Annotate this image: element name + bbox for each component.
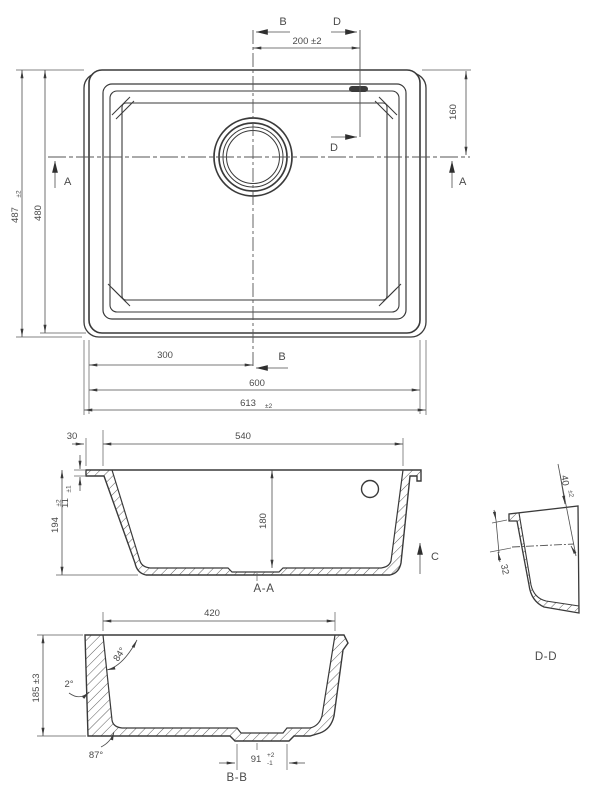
dim-11-tol: ±1 <box>66 485 73 493</box>
section-aa-label: A-A <box>254 583 275 595</box>
dim-487-tol: ±2 <box>16 190 23 198</box>
sink-technical-drawing-page: B D 200 ±2 160 A A 487 ±2 480 <box>0 0 613 800</box>
section-aa-hatch <box>86 470 421 575</box>
angle-2-label: 2° <box>64 679 73 690</box>
overflow-hole-section <box>362 481 379 498</box>
dim-32-label: 32 <box>498 563 511 576</box>
dim-613-label: 613 <box>240 398 256 409</box>
dim-185-label: 185 ±3 <box>31 674 42 703</box>
section-bb-bowl-surface <box>103 635 335 733</box>
dim-480-label: 480 <box>33 205 44 221</box>
angle-87-label: 87° <box>89 750 104 761</box>
angle-2-leader <box>69 692 89 697</box>
dim-30-label: 30 <box>67 431 78 442</box>
section-bb-label: B-B <box>227 772 248 784</box>
dim-32-arrow-bottom <box>498 552 500 562</box>
dim-200-label: 200 ±2 <box>293 36 322 47</box>
section-dd-dimensions: 40 ±2 32 D-D <box>490 464 576 663</box>
section-dd-hatch <box>509 513 579 612</box>
dim-613-tol: ±2 <box>265 403 273 410</box>
dim-160-label: 160 <box>448 104 459 120</box>
section-d-top-label: D <box>333 16 341 28</box>
view-c-label: C <box>431 551 439 563</box>
plan-view: B D 200 ±2 160 A A 487 ±2 480 <box>10 16 471 415</box>
dim-194-label: 194 <box>50 517 61 533</box>
section-b-bottom-label: B <box>278 351 285 363</box>
section-dd-view: 40 ±2 32 D-D <box>490 464 579 663</box>
dim-540-label: 540 <box>235 431 251 442</box>
dim-487-label: 487 <box>10 207 21 223</box>
section-a-left-label: A <box>64 176 72 188</box>
section-bb-view: 420 185 ±3 84° 2° 87° 91 +2 -1 B-B <box>31 608 348 784</box>
sink-flange-outline <box>89 70 420 333</box>
dim-600-label: 600 <box>249 378 265 389</box>
dim-32-ext-top <box>492 520 507 523</box>
dim-194-tol: ±2 <box>56 499 63 507</box>
dim-40-tol: ±2 <box>566 490 574 499</box>
dim-180-label: 180 <box>258 513 269 529</box>
section-dd-label: D-D <box>535 651 557 663</box>
dim-40-label: 40 <box>558 474 571 486</box>
overflow-slot <box>349 86 368 92</box>
dim-91-tol-minus: -1 <box>267 760 273 767</box>
section-b-top-label: B <box>279 16 286 28</box>
dim-300-label: 300 <box>157 350 173 361</box>
angle-84-label: 84° <box>111 645 128 663</box>
dim-32-arrow-top <box>494 510 496 520</box>
dim-91-tol-plus: +2 <box>267 752 275 759</box>
dim-91-label: 91 <box>251 754 262 765</box>
section-aa-view: 30 540 11 ±1 194 ±2 180 C A-A <box>50 430 439 595</box>
section-a-right-label: A <box>459 176 467 188</box>
dim-420-label: 420 <box>204 608 220 619</box>
dim-32-line <box>496 520 499 553</box>
dim-32-ext-bottom <box>490 548 511 552</box>
section-d-mid-label: D <box>330 142 338 154</box>
sink-technical-drawing: B D 200 ±2 160 A A 487 ±2 480 <box>0 0 613 800</box>
